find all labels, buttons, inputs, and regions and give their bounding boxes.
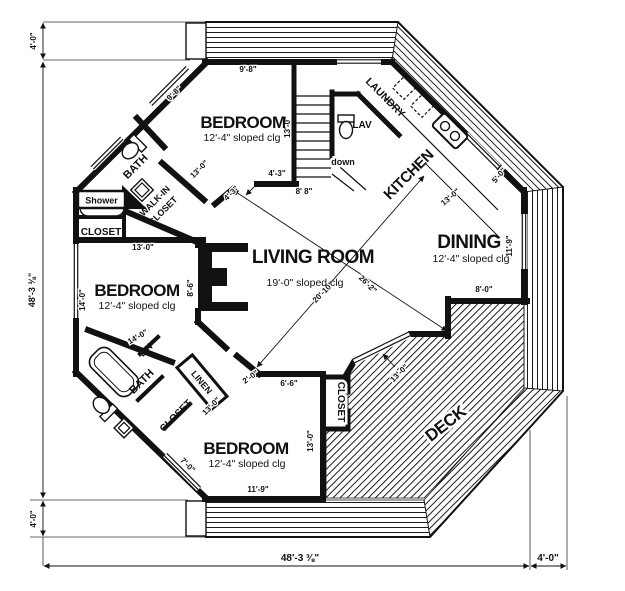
dim-living-diag-b: 26'-2" <box>357 273 379 295</box>
bedroom-left-label: BEDROOM <box>94 281 180 300</box>
dim-hall-a: 4'-3" <box>268 169 285 178</box>
dim-n-wall: 9'-8" <box>239 65 256 74</box>
dim-bedroom-left-top: 13'-0" <box>132 243 154 252</box>
floor-plan-page: Shower LINEN <box>0 0 625 591</box>
bedroom-top-label: BEDROOM <box>200 113 286 132</box>
window-east <box>521 214 528 269</box>
shower-label-box: Shower <box>78 191 125 208</box>
living-room-ceiling: 19'-0" sloped clg <box>267 277 344 289</box>
deck-step-top <box>186 23 206 59</box>
dim-overall-bottom: 48'-3 ⅜" <box>281 553 320 564</box>
dim-deck-bottom-left: 4'-0" <box>29 510 38 527</box>
deck-band-bottom <box>205 500 430 537</box>
window-north <box>337 58 381 65</box>
sink-bath-bottom <box>114 418 134 438</box>
bedroom-bottom-label: BEDROOM <box>203 439 289 458</box>
shower-label: Shower <box>85 196 118 206</box>
deck-band-top <box>205 22 398 60</box>
dim-w-wall: 14'-0" <box>78 289 87 311</box>
stairs-down-label: down <box>331 157 355 167</box>
bedroom-bottom-ceiling: 12'-4" sloped clg <box>209 458 286 470</box>
deck-band-right <box>524 187 563 391</box>
closet-top-label: CLOSET <box>81 227 122 238</box>
laundry-label: LAUNDRY <box>363 76 408 121</box>
dim-dining-bottom: 8'-0" <box>475 285 492 294</box>
dim-living-left: 8'-6" <box>186 279 195 296</box>
dim-entry-b: 6'-6" <box>280 379 297 388</box>
fireplace <box>198 243 248 311</box>
floor-plan-drawing: Shower LINEN <box>0 0 625 591</box>
dim-bedroom-bottom-right: 13'-0" <box>306 430 315 452</box>
dim-walkin-wall: 13'-0" <box>188 158 210 180</box>
kitchen-label: KITCHEN <box>380 146 437 203</box>
dim-deck-bottom-right: 4'-0" <box>537 553 559 564</box>
stair-treads <box>295 96 331 177</box>
hall-wall-arrow <box>246 184 257 195</box>
lav-label: LAV <box>352 120 372 131</box>
living-room-label: LIVING ROOM <box>252 247 374 268</box>
bedroom-left-ceiling: 12'-4" sloped clg <box>99 300 176 312</box>
dining-label: DINING <box>437 232 501 253</box>
deck-step-bottom <box>186 501 206 536</box>
dim-overall-left: 48'-3 ⅜" <box>27 273 37 307</box>
dim-kitchen-depth: 13'-0" <box>439 187 462 208</box>
dining-ceiling: 12'-4" sloped clg <box>433 253 510 265</box>
closet-bottom-left-label: CLOSET <box>158 398 194 434</box>
dim-hall-width: 8' 8" <box>296 187 313 196</box>
closet-bottom-right-label: CLOSET <box>335 382 346 423</box>
bedroom-top-ceiling: 12'-4" sloped clg <box>204 132 281 144</box>
dim-bedroom-bottom-wall: 11'-9" <box>247 485 268 494</box>
dim-deck-top: 4'-0" <box>29 32 38 49</box>
